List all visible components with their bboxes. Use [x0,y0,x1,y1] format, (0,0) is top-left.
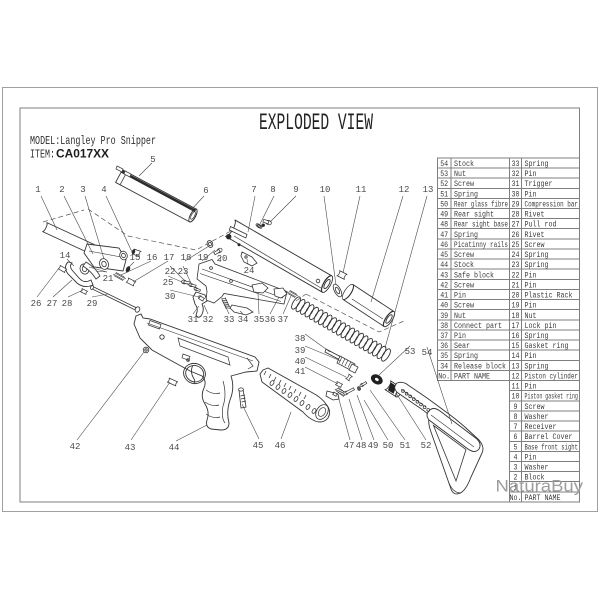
svg-text:Spring: Spring [525,250,549,260]
svg-text:6: 6 [203,186,208,196]
svg-text:46: 46 [440,240,448,250]
svg-text:Stock: Stock [454,159,474,169]
svg-text:Pin: Pin [454,331,466,341]
svg-text:Nut: Nut [454,311,466,321]
svg-text:27: 27 [47,299,58,309]
svg-text:40: 40 [440,301,448,311]
svg-text:Screw: Screw [454,301,475,311]
svg-text:18: 18 [512,311,520,321]
svg-text:12: 12 [512,371,520,381]
svg-text:45: 45 [253,441,264,451]
svg-text:1: 1 [35,185,40,195]
svg-text:Spring: Spring [525,159,549,169]
svg-text:25: 25 [163,278,174,288]
svg-text:Rivet: Rivet [525,230,545,240]
svg-text:23: 23 [178,267,189,277]
svg-text:Safe block: Safe block [454,270,494,280]
svg-text:3: 3 [514,463,518,473]
svg-text:42: 42 [440,280,448,290]
svg-text:Nut: Nut [454,169,466,179]
svg-text:11: 11 [512,382,520,392]
svg-text:12: 12 [399,185,410,195]
svg-text:Screw: Screw [525,240,546,250]
svg-text:Spring: Spring [525,331,549,341]
svg-text:Pull rod: Pull rod [525,220,557,230]
svg-text:Spring: Spring [454,189,478,199]
svg-text:7: 7 [251,185,256,195]
svg-text:31: 31 [512,179,520,189]
svg-text:7: 7 [514,422,518,432]
svg-text:28: 28 [62,299,73,309]
svg-text:27: 27 [512,220,520,230]
svg-text:34: 34 [440,361,448,371]
svg-text:16: 16 [512,331,520,341]
svg-text:42: 42 [70,442,81,452]
svg-text:17: 17 [164,253,175,263]
svg-text:11: 11 [356,185,367,195]
svg-text:Piston cylinder: Piston cylinder [525,371,579,381]
svg-text:Pin: Pin [525,351,537,361]
svg-text:6: 6 [514,432,518,442]
svg-text:Sear: Sear [454,341,470,351]
svg-text:Connect part: Connect part [454,321,502,331]
svg-text:41: 41 [440,291,448,301]
svg-text:19: 19 [198,253,209,263]
svg-text:38: 38 [295,334,306,344]
svg-text:15: 15 [130,253,141,263]
svg-text:Screw: Screw [454,250,475,260]
svg-text:Spring: Spring [454,351,478,361]
svg-text:PART NAME: PART NAME [454,371,490,381]
svg-text:49: 49 [440,210,448,220]
svg-text:28: 28 [512,210,520,220]
svg-text:52: 52 [440,179,448,189]
svg-text:Screw: Screw [525,402,546,412]
svg-text:Trigger: Trigger [525,179,553,189]
svg-text:26: 26 [512,230,520,240]
svg-text:15: 15 [512,341,520,351]
svg-text:Spring: Spring [525,361,549,371]
svg-text:5: 5 [514,442,518,452]
svg-text:Plastic Rack: Plastic Rack [525,291,573,301]
svg-text:EXPLODED VIEW: EXPLODED VIEW [259,110,374,137]
svg-text:Rivet: Rivet [525,210,545,220]
svg-text:37: 37 [278,315,289,325]
svg-text:51: 51 [440,189,448,199]
svg-text:24: 24 [512,250,520,260]
svg-text:34: 34 [238,315,249,325]
svg-text:4: 4 [101,185,106,195]
svg-text:9: 9 [293,185,298,195]
svg-text:24: 24 [244,266,255,276]
svg-text:Screw: Screw [454,179,475,189]
svg-text:14: 14 [512,351,520,361]
svg-text:54: 54 [422,348,433,358]
svg-text:Pin: Pin [525,169,537,179]
svg-text:Release block: Release block [454,361,506,371]
svg-text:2: 2 [59,185,64,195]
svg-text:44: 44 [440,260,448,270]
svg-text:Screw: Screw [454,280,475,290]
svg-text:50: 50 [383,441,394,451]
svg-text:41: 41 [295,367,306,377]
svg-text:NaturaBuy: NaturaBuy [496,477,584,496]
svg-text:Lock pin: Lock pin [525,321,557,331]
svg-text:21: 21 [103,274,114,284]
svg-text:51: 51 [400,441,411,451]
svg-text:Compression bar: Compression bar [525,199,579,209]
svg-text:20: 20 [217,254,228,264]
svg-text:10: 10 [320,185,331,195]
svg-text:23: 23 [512,260,520,270]
svg-text:No.: No. [438,371,450,381]
svg-text:43: 43 [125,443,136,453]
svg-text:Piston gasket ring: Piston gasket ring [525,392,579,402]
svg-text:50: 50 [440,199,448,209]
svg-text:53: 53 [405,347,416,357]
svg-text:10: 10 [512,392,520,402]
svg-text:29: 29 [87,299,98,309]
svg-text:17: 17 [512,321,520,331]
svg-text:8: 8 [270,185,275,195]
svg-text:22: 22 [165,267,176,277]
svg-text:16: 16 [147,253,158,263]
svg-text:19: 19 [512,301,520,311]
svg-text:33: 33 [224,315,235,325]
svg-text:9: 9 [514,402,518,412]
svg-text:3: 3 [80,185,85,195]
svg-text:Base front sight: Base front sight [525,442,579,452]
svg-text:43: 43 [440,270,448,280]
svg-text:Spring: Spring [454,230,478,240]
svg-text:Pin: Pin [525,189,537,199]
svg-text:46: 46 [275,441,286,451]
svg-text:Stock: Stock [454,260,474,270]
svg-text:35: 35 [254,315,265,325]
svg-text:53: 53 [440,169,448,179]
svg-text:Rear sight: Rear sight [454,210,494,220]
svg-text:ITEM:: ITEM: [30,147,55,161]
svg-text:32: 32 [512,169,520,179]
svg-text:39: 39 [440,311,448,321]
svg-text:48: 48 [440,220,448,230]
svg-text:47: 47 [440,230,448,240]
svg-text:Rear glass fibre: Rear glass fibre [454,199,508,209]
svg-text:48: 48 [356,441,367,451]
svg-text:49: 49 [368,441,379,451]
svg-text:25: 25 [512,240,520,250]
svg-text:Spring: Spring [525,260,549,270]
svg-text:13: 13 [423,185,434,195]
svg-text:Pin: Pin [525,270,537,280]
svg-text:Pin: Pin [525,301,537,311]
svg-text:Pin: Pin [454,291,466,301]
svg-text:MODEL:Langley Pro Snipper: MODEL:Langley Pro Snipper [30,134,156,148]
svg-text:30: 30 [165,292,176,302]
svg-text:Receiver: Receiver [525,422,557,432]
svg-text:37: 37 [440,331,448,341]
svg-text:35: 35 [440,351,448,361]
svg-text:54: 54 [440,159,448,169]
svg-text:Picatinny rails: Picatinny rails [454,240,508,250]
svg-text:Rear sight base: Rear sight base [454,220,508,230]
svg-text:36: 36 [440,341,448,351]
svg-text:Pin: Pin [525,382,537,392]
svg-text:29: 29 [512,199,520,209]
svg-text:38: 38 [440,321,448,331]
svg-text:Washer: Washer [525,463,549,473]
svg-text:8: 8 [514,412,518,422]
svg-text:Pin: Pin [525,452,537,462]
svg-text:Washer: Washer [525,412,549,422]
svg-text:20: 20 [512,291,520,301]
svg-text:18: 18 [181,253,192,263]
svg-text:22: 22 [512,270,520,280]
svg-text:Nut: Nut [525,311,537,321]
svg-text:13: 13 [512,361,520,371]
svg-text:26: 26 [31,299,42,309]
svg-text:39: 39 [295,346,306,356]
svg-text:30: 30 [512,189,520,199]
svg-text:45: 45 [440,250,448,260]
svg-text:CA017XX: CA017XX [56,148,109,160]
svg-text:40: 40 [295,357,306,367]
svg-text:Gasket ring: Gasket ring [525,341,569,351]
svg-text:52: 52 [421,441,432,451]
svg-text:5: 5 [150,155,155,165]
svg-text:31: 31 [188,315,199,325]
svg-text:4: 4 [514,452,518,462]
svg-text:44: 44 [169,443,180,453]
svg-text:36: 36 [265,315,276,325]
svg-text:33: 33 [512,159,520,169]
svg-text:32: 32 [203,315,214,325]
svg-text:21: 21 [512,280,520,290]
svg-text:Barrel Cover: Barrel Cover [525,432,573,442]
svg-text:14: 14 [60,251,71,261]
svg-text:47: 47 [344,441,355,451]
svg-text:Pin: Pin [525,280,537,290]
